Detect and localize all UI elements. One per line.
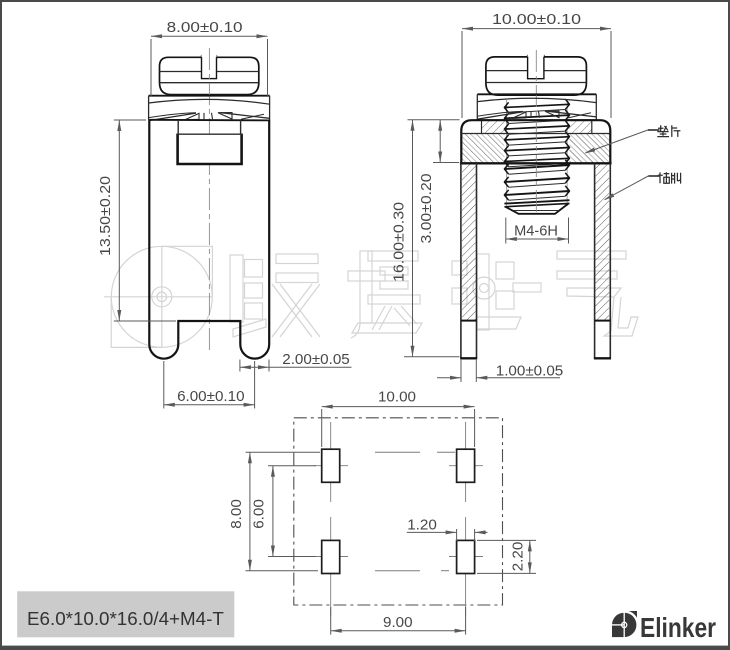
- svg-text:E6.0*10.0*16.0/4+M4-T: E6.0*10.0*16.0/4+M4-T: [27, 608, 224, 629]
- svg-text:13.50±0.20: 13.50±0.20: [97, 176, 114, 256]
- svg-text:16.00±0.30: 16.00±0.30: [391, 202, 408, 282]
- svg-text:1.00±0.05: 1.00±0.05: [496, 362, 563, 379]
- svg-text:2.00±0.05: 2.00±0.05: [282, 351, 349, 368]
- svg-text:8.00: 8.00: [228, 499, 245, 529]
- svg-text:10.00: 10.00: [378, 388, 416, 405]
- svg-text:10.00±0.10: 10.00±0.10: [492, 11, 581, 28]
- svg-text:9.00: 9.00: [383, 614, 413, 631]
- svg-text:M4-6H: M4-6H: [514, 223, 558, 239]
- svg-text:8.00±0.10: 8.00±0.10: [167, 19, 243, 36]
- svg-text:1.20: 1.20: [407, 517, 437, 534]
- svg-text:6.00: 6.00: [251, 499, 268, 529]
- svg-text:2.20: 2.20: [510, 542, 527, 572]
- svg-text:3.00±0.20: 3.00±0.20: [419, 174, 435, 244]
- svg-text:6.00±0.10: 6.00±0.10: [177, 388, 244, 405]
- svg-text:Elinker: Elinker: [640, 612, 716, 643]
